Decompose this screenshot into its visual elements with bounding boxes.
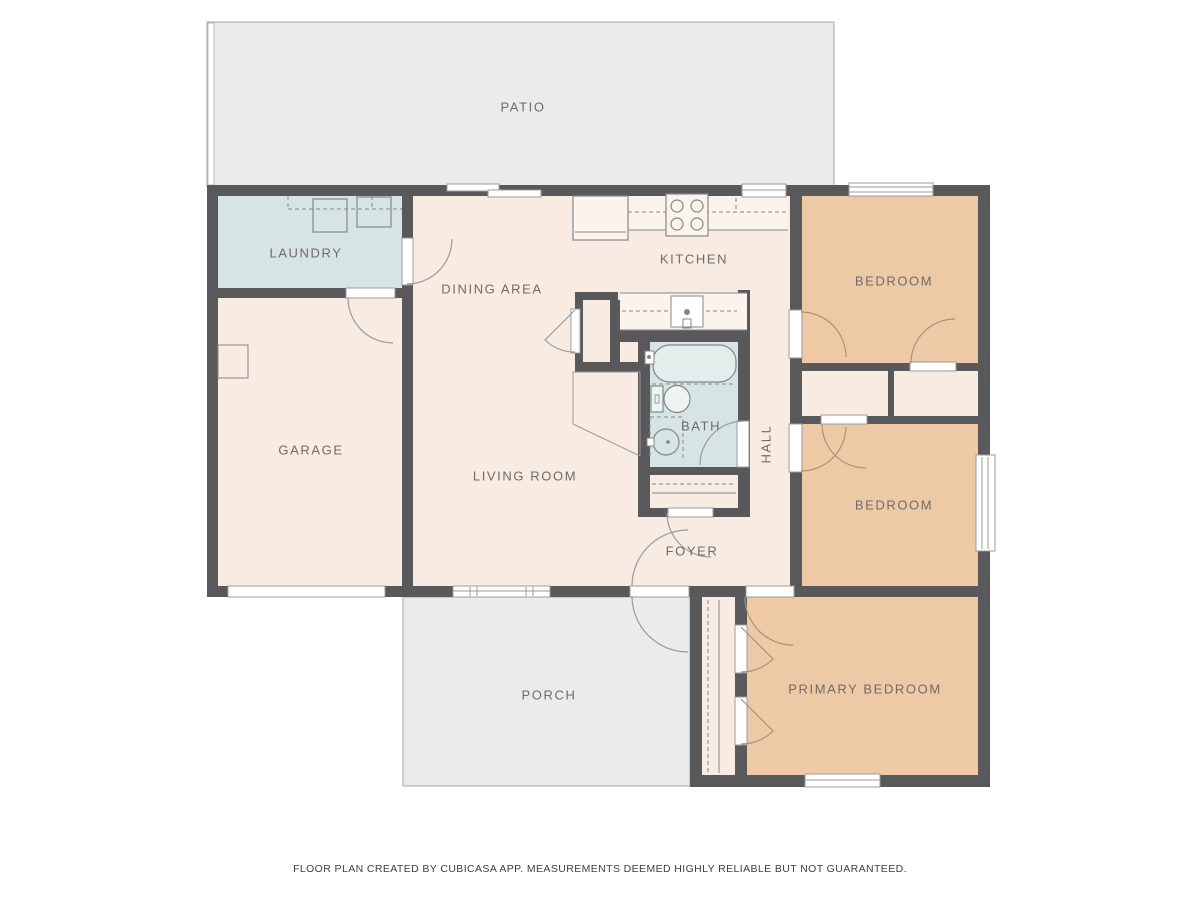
stove-icon bbox=[666, 194, 708, 236]
bedroom-top-window bbox=[849, 183, 933, 196]
kitchen-window bbox=[742, 184, 786, 197]
room-label-bedroom-top: BEDROOM bbox=[855, 274, 933, 289]
patio-edge-strip bbox=[208, 23, 214, 185]
refrigerator bbox=[573, 196, 628, 240]
kitchen-sink bbox=[671, 296, 703, 328]
floor-plan-drawing bbox=[0, 0, 1200, 900]
room-label-hall: HALL bbox=[759, 425, 774, 464]
room-label-living: LIVING ROOM bbox=[473, 469, 577, 484]
garage-door bbox=[228, 586, 385, 597]
room-label-kitchen: KITCHEN bbox=[660, 252, 728, 267]
room-label-garage: GARAGE bbox=[278, 443, 343, 458]
closet-left-floor bbox=[802, 371, 888, 416]
laundry-floor bbox=[218, 196, 402, 288]
room-label-foyer: FOYER bbox=[666, 544, 719, 559]
room-label-primary: PRIMARY BEDROOM bbox=[788, 682, 942, 697]
room-label-bedroom-mid: BEDROOM bbox=[855, 498, 933, 513]
closet-right-floor bbox=[894, 371, 978, 416]
bathtub bbox=[645, 345, 736, 382]
room-label-porch: PORCH bbox=[522, 688, 577, 703]
bedroom-mid-window bbox=[976, 455, 995, 551]
room-label-dining: DINING AREA bbox=[441, 282, 542, 297]
toilet bbox=[651, 386, 690, 413]
foyer-closet-floor bbox=[650, 475, 738, 508]
living-room-window bbox=[453, 586, 550, 597]
water-heater bbox=[218, 345, 248, 378]
primary-bedroom-window bbox=[805, 774, 880, 787]
room-label-patio: PATIO bbox=[500, 100, 545, 115]
room-label-laundry: LAUNDRY bbox=[269, 246, 342, 261]
room-label-bath: BATH bbox=[681, 419, 721, 434]
footer-disclaimer: FLOOR PLAN CREATED BY CUBICASA APP. MEAS… bbox=[0, 863, 1200, 875]
floor-plan: PATIO LAUNDRY DINING AREA KITCHEN BEDROO… bbox=[0, 0, 1200, 900]
